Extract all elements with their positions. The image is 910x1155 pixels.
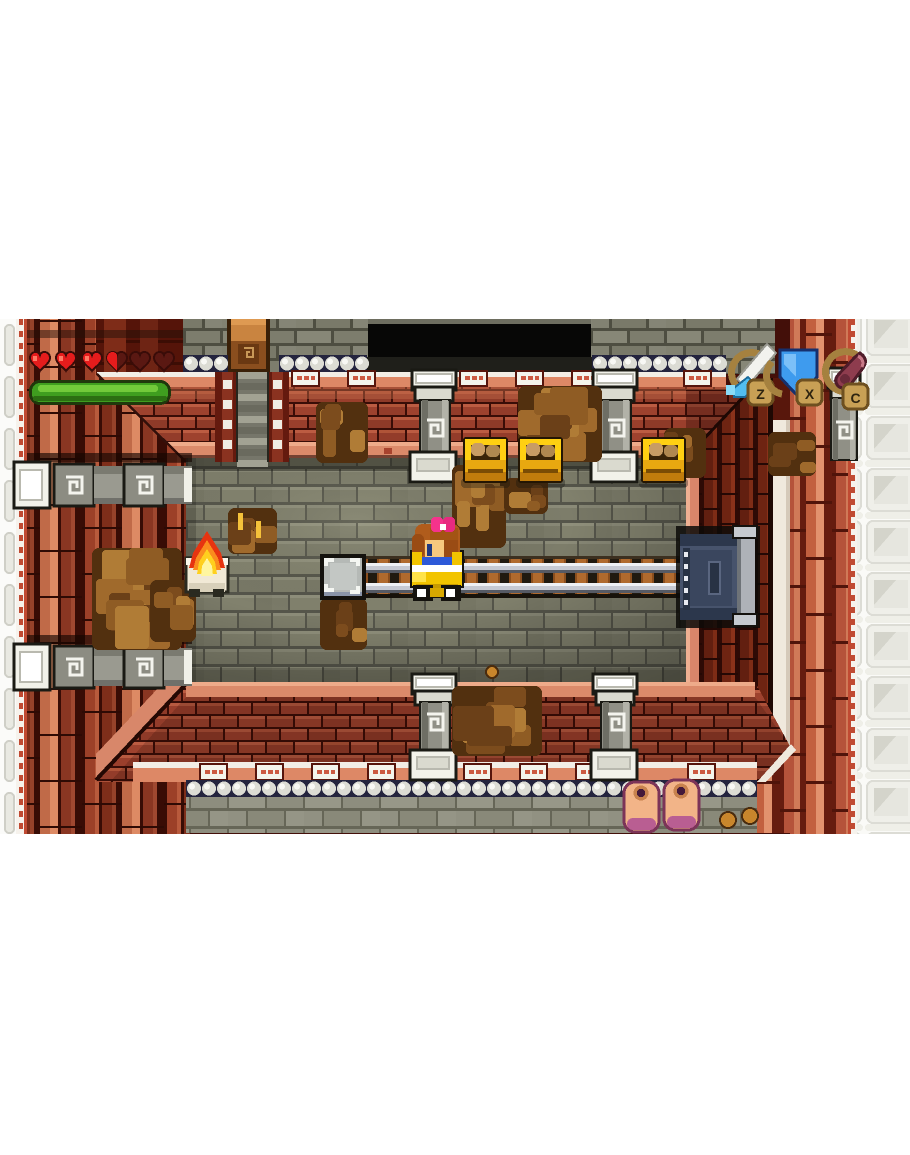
svg-text:X: X bbox=[805, 386, 815, 402]
svg-text:Z: Z bbox=[756, 386, 765, 402]
svg-text:C: C bbox=[850, 390, 860, 406]
